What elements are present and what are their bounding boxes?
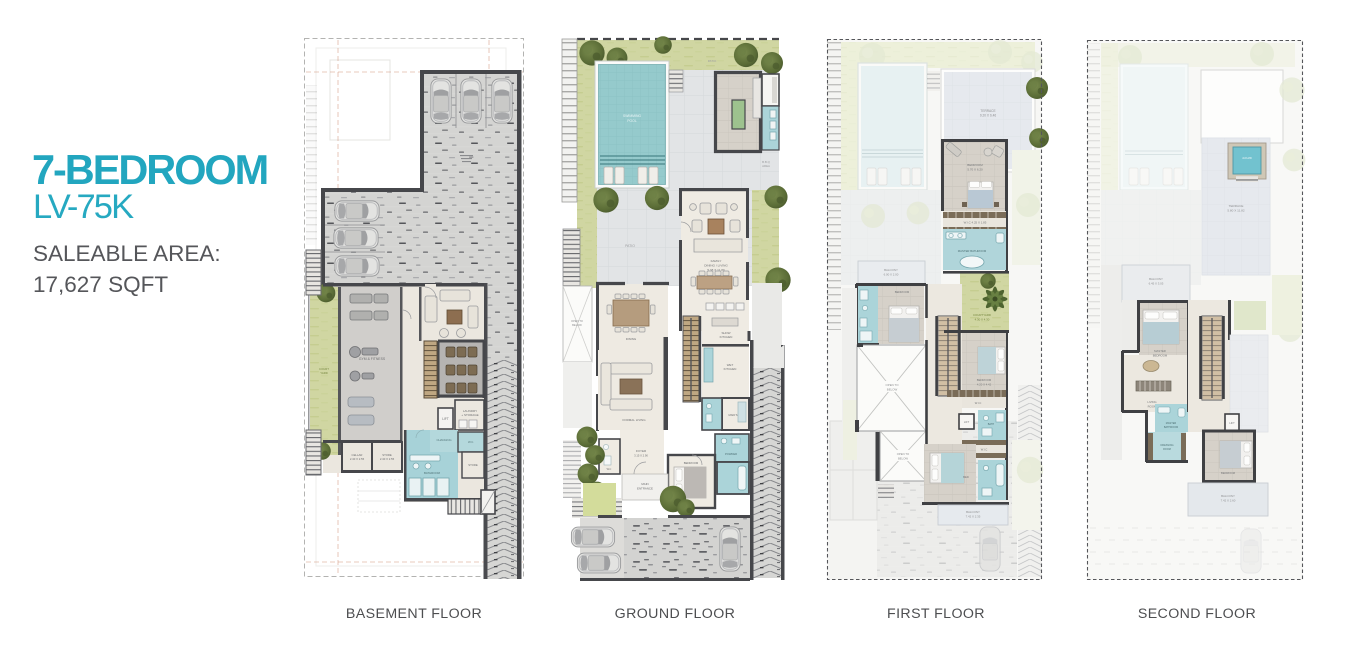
svg-text:BELOW: BELOW (898, 457, 908, 461)
svg-text:BALCONY: BALCONY (1149, 277, 1163, 281)
svg-text:DRESSING: DRESSING (1160, 444, 1173, 447)
svg-text:COURTYARD: COURTYARD (973, 313, 991, 317)
svg-text:MAIN: MAIN (641, 482, 648, 486)
svg-text:CHANGING: CHANGING (436, 438, 451, 442)
svg-text:BEDROOM: BEDROOM (977, 378, 992, 382)
svg-text:2.40 X 2.55: 2.40 X 2.55 (380, 457, 395, 461)
svg-text:FORMAL LIVING: FORMAL LIVING (622, 418, 646, 422)
svg-text:ENTRANCE: ENTRANCE (637, 487, 653, 491)
svg-text:TERRACE: TERRACE (1229, 204, 1244, 208)
svg-text:7.42 X 2.35: 7.42 X 2.35 (966, 515, 981, 519)
svg-text:W.C: W.C (607, 468, 612, 471)
svg-text:W.I.C 4.25 X 1.85: W.I.C 4.25 X 1.85 (964, 221, 987, 225)
svg-text:TERRACE: TERRACE (980, 109, 995, 113)
svg-text:KITCHEN: KITCHEN (720, 335, 733, 339)
svg-text:OPEN TO: OPEN TO (886, 383, 900, 387)
svg-text:9.20 X 6.46: 9.20 X 6.46 (980, 114, 997, 118)
svg-text:JACUZZI: JACUZZI (1242, 157, 1252, 160)
svg-text:AREA: AREA (762, 164, 770, 168)
svg-text:BALCONY: BALCONY (884, 268, 898, 272)
svg-text:PATIO: PATIO (625, 244, 635, 248)
svg-text:3.15 X 2.90: 3.15 X 2.90 (634, 454, 648, 458)
svg-text:DINING / LIVING: DINING / LIVING (704, 264, 728, 268)
svg-text:FAMILY: FAMILY (711, 259, 722, 263)
svg-text:LIFT: LIFT (442, 417, 449, 421)
svg-text:W.I.C: W.I.C (975, 401, 982, 405)
svg-text:6.00 X 2.00: 6.00 X 2.00 (884, 273, 899, 277)
svg-text:BEDROOM: BEDROOM (684, 461, 699, 465)
svg-text:GYM & FITNESS: GYM & FITNESS (359, 357, 386, 361)
svg-text:BEDROOM: BEDROOM (1221, 471, 1236, 475)
svg-text:YARD: YARD (320, 371, 328, 375)
svg-text:POOL: POOL (627, 119, 637, 123)
svg-text:BELOW: BELOW (572, 323, 582, 327)
svg-text:BELOW: BELOW (887, 388, 898, 392)
svg-text:4.30 X 4.30: 4.30 X 4.30 (975, 318, 990, 322)
svg-text:4.20 X 4.42: 4.20 X 4.42 (977, 383, 992, 387)
svg-text:W.C.: W.C. (468, 440, 474, 444)
svg-text:5.80 X 11.82: 5.80 X 11.82 (1227, 209, 1245, 213)
svg-text:STORE: STORE (468, 463, 478, 467)
svg-text:LIFT: LIFT (964, 420, 970, 424)
svg-text:ROOM: ROOM (1163, 448, 1171, 451)
svg-text:7.42 X 2.60: 7.42 X 2.60 (1221, 499, 1236, 503)
svg-text:BALCONY: BALCONY (1221, 494, 1235, 498)
svg-text:OPEN TO: OPEN TO (571, 319, 583, 323)
svg-text:SWIMMING: SWIMMING (623, 114, 641, 118)
svg-text:6.45 X 3.05: 6.45 X 3.05 (1149, 282, 1164, 286)
svg-text:BEDROOM: BEDROOM (895, 290, 910, 294)
svg-text:MASTER BATHROOM: MASTER BATHROOM (958, 249, 987, 253)
svg-text:BED: BED (963, 475, 969, 479)
svg-text:PATIO: PATIO (708, 59, 717, 63)
svg-text:DINING: DINING (626, 337, 637, 341)
svg-text:BATHROOM: BATHROOM (424, 471, 441, 475)
svg-text:BEDROOM: BEDROOM (1153, 354, 1168, 358)
svg-text:POWDER: POWDER (725, 452, 737, 456)
svg-text:BALCONY: BALCONY (966, 510, 980, 514)
svg-text:LIVING: LIVING (1147, 400, 1156, 404)
svg-text:BATH: BATH (988, 423, 995, 426)
svg-text:FOYER: FOYER (636, 449, 647, 453)
svg-text:KITCHEN: KITCHEN (724, 367, 737, 371)
svg-text:5.70 X 6.20: 5.70 X 6.20 (967, 168, 983, 172)
svg-text:MASTER: MASTER (1154, 349, 1166, 353)
svg-text:BEDROOM: BEDROOM (967, 163, 983, 167)
svg-text:2.40 X 2.55: 2.40 X 2.55 (350, 457, 365, 461)
svg-text:BATHROOM: BATHROOM (1164, 426, 1178, 429)
svg-text:W.I.C: W.I.C (981, 448, 988, 452)
svg-text:OPEN TO: OPEN TO (897, 452, 910, 456)
svg-text:MASTER: MASTER (1166, 422, 1177, 425)
svg-text:+ STORAGE: + STORAGE (461, 413, 478, 417)
svg-text:MAID'S: MAID'S (728, 413, 737, 417)
svg-text:LIFT: LIFT (1229, 421, 1235, 425)
